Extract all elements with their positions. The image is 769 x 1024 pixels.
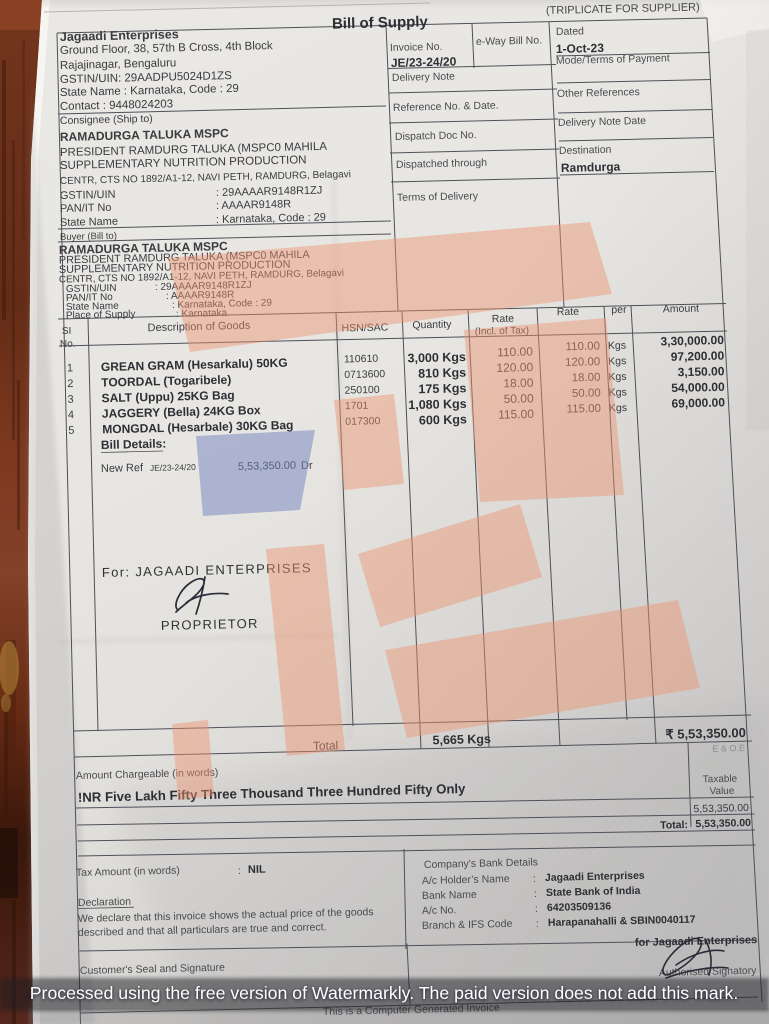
svg-text:Bill Details:: Bill Details: <box>101 436 167 452</box>
svg-text:Bank Name: Bank Name <box>422 889 477 902</box>
svg-text:Total:: Total: <box>660 819 688 832</box>
svg-text:5: 5 <box>68 425 74 437</box>
svg-text:Tax Amount (in words): Tax Amount (in words) <box>76 865 180 879</box>
svg-text:GSTIN/UIN: GSTIN/UIN <box>60 189 116 202</box>
svg-text::: : <box>534 888 537 900</box>
svg-text:JE/23-24/20: JE/23-24/20 <box>391 54 457 70</box>
svg-text::: : <box>533 873 536 885</box>
svg-text:4: 4 <box>68 409 74 421</box>
svg-text:Taxable: Taxable <box>703 774 738 786</box>
svg-text:NIL: NIL <box>248 864 266 876</box>
svg-text::: : <box>536 918 539 930</box>
svg-text:54,000.00: 54,000.00 <box>671 380 725 395</box>
svg-text:Jagaadi Enterprises: Jagaadi Enterprises <box>60 27 179 44</box>
svg-text:No.: No. <box>60 339 76 350</box>
svg-text:State Bank of India: State Bank of India <box>546 885 641 899</box>
svg-text:JE/23-24/20: JE/23-24/20 <box>150 462 196 473</box>
svg-text:PAN/IT No: PAN/IT No <box>60 202 112 215</box>
svg-text::: : <box>238 865 241 877</box>
svg-text:Terms of Delivery: Terms of Delivery <box>397 190 479 204</box>
svg-text:Delivery Note Date: Delivery Note Date <box>558 115 647 129</box>
svg-text:State Name: State Name <box>60 216 118 229</box>
svg-text:: AAAAR9148R: : AAAAR9148R <box>216 198 292 212</box>
svg-text:₹ 5,53,350.00: ₹ 5,53,350.00 <box>665 725 746 742</box>
svg-text:1,080 Kgs: 1,080 Kgs <box>408 397 467 412</box>
svg-text:PROPRIETOR: PROPRIETOR <box>161 616 259 633</box>
svg-text:Value: Value <box>709 786 735 798</box>
svg-text::: : <box>535 903 538 915</box>
svg-text:Invoice No.: Invoice No. <box>390 41 443 54</box>
svg-text:Consignee (Ship to): Consignee (Ship to) <box>60 113 153 127</box>
svg-text:1: 1 <box>67 362 73 374</box>
svg-text:Branch & IFS Code: Branch & IFS Code <box>422 918 513 932</box>
svg-text:250100: 250100 <box>344 384 379 397</box>
svg-text:175 Kgs: 175 Kgs <box>418 381 466 396</box>
svg-text:Delivery Note: Delivery Note <box>392 71 455 84</box>
svg-text:97,200.00: 97,200.00 <box>671 349 725 364</box>
svg-text:110610: 110610 <box>344 353 379 366</box>
svg-text:0713600: 0713600 <box>344 368 385 381</box>
svg-text:Amount: Amount <box>663 303 700 316</box>
svg-text:5,53,350.00: 5,53,350.00 <box>695 817 751 830</box>
svg-text:5,53,350.00: 5,53,350.00 <box>693 802 749 815</box>
svg-text:Rate: Rate <box>557 306 580 319</box>
svg-text:3,150.00: 3,150.00 <box>678 364 725 379</box>
svg-text:Processed using the free versi: Processed using the free version of Wate… <box>30 983 739 1003</box>
svg-text:3,000 Kgs: 3,000 Kgs <box>407 350 466 365</box>
svg-text:: Karnataka, Code : 29: : Karnataka, Code : 29 <box>216 211 326 226</box>
svg-text:Dispatch Doc No.: Dispatch Doc No. <box>395 129 477 143</box>
svg-text:Bill of Supply: Bill of Supply <box>332 13 429 32</box>
svg-text:Place of Supply: Place of Supply <box>66 309 136 322</box>
svg-text:Jagaadi Enterprises: Jagaadi Enterprises <box>545 870 645 884</box>
svg-text:69,000.00: 69,000.00 <box>671 395 725 410</box>
svg-text:5,665 Kgs: 5,665 Kgs <box>432 732 491 747</box>
svg-text:Ramdurga: Ramdurga <box>561 160 621 175</box>
svg-text:600 Kgs: 600 Kgs <box>419 412 467 427</box>
svg-text:Rate: Rate <box>492 313 515 326</box>
svg-text:Reference No. & Date.: Reference No. & Date. <box>393 100 499 114</box>
svg-text:Other References: Other References <box>557 86 640 100</box>
svg-text:Destination: Destination <box>559 144 612 157</box>
svg-text:64203509136: 64203509136 <box>547 901 612 914</box>
svg-text:E & O.E: E & O.E <box>712 743 745 754</box>
svg-text:A/c No.: A/c No. <box>422 904 457 917</box>
svg-text:Dispatched through: Dispatched through <box>396 157 487 171</box>
svg-text:3,30,000.00: 3,30,000.00 <box>660 333 724 348</box>
svg-text:e-Way Bill No.: e-Way Bill No. <box>476 34 542 48</box>
svg-text:Dated: Dated <box>556 25 584 38</box>
svg-text:2: 2 <box>67 378 73 390</box>
svg-text:per: per <box>611 304 627 316</box>
svg-text:: 29AAAAR9148R1ZJ: : 29AAAAR9148R1ZJ <box>216 185 323 199</box>
svg-text:810 Kgs: 810 Kgs <box>418 366 466 381</box>
svg-text:SI: SI <box>62 326 72 337</box>
svg-text:Declaration: Declaration <box>78 896 132 909</box>
svg-text:New Ref: New Ref <box>101 462 144 475</box>
svg-text:A/c Holder’s Name: A/c Holder’s Name <box>422 873 510 887</box>
svg-text:3: 3 <box>67 394 73 406</box>
svg-text:Kgs: Kgs <box>608 340 626 352</box>
